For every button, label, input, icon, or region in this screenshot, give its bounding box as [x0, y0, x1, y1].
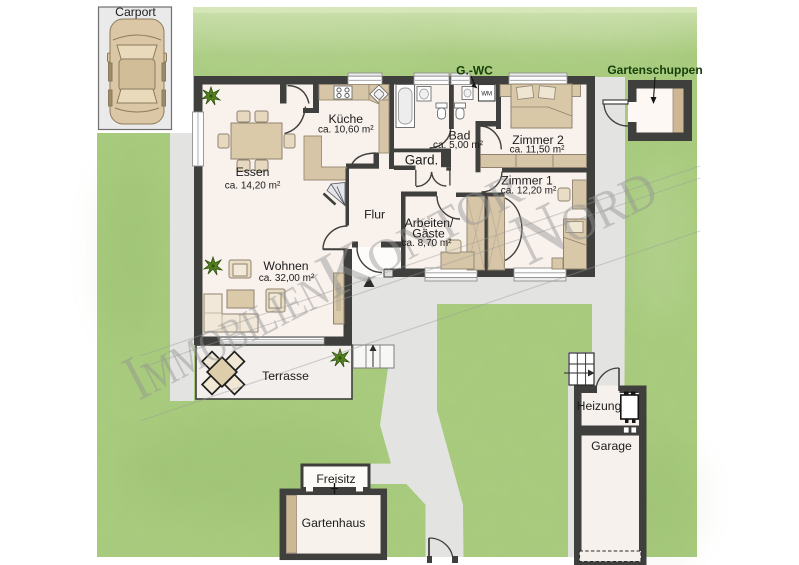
svg-text:Essen: Essen: [236, 165, 270, 179]
svg-text:Gartenschuppen: Gartenschuppen: [607, 63, 702, 77]
svg-text:ca. 5,00 m²: ca. 5,00 m²: [433, 140, 484, 151]
svg-text:Gartenhaus: Gartenhaus: [302, 516, 366, 530]
svg-text:ca. 8,70 m²: ca. 8,70 m²: [401, 238, 452, 249]
svg-text:ca. 14,20 m²: ca. 14,20 m²: [225, 181, 281, 192]
svg-text:Garage: Garage: [591, 439, 632, 453]
svg-text:Terrasse: Terrasse: [262, 369, 309, 383]
svg-text:Freisitz: Freisitz: [316, 472, 355, 486]
svg-text:Flur: Flur: [364, 207, 385, 221]
svg-text:ca. 10,60 m²: ca. 10,60 m²: [318, 125, 374, 136]
svg-text:Heizung: Heizung: [577, 399, 622, 413]
svg-text:Gard.: Gard.: [405, 153, 439, 168]
svg-text:G.-WC: G.-WC: [456, 64, 493, 78]
svg-text:Wohnen: Wohnen: [263, 259, 308, 273]
svg-text:ca. 11,50 m²: ca. 11,50 m²: [510, 145, 566, 156]
svg-text:ca. 32,00 m²: ca. 32,00 m²: [259, 273, 315, 284]
svg-text:WM: WM: [481, 92, 492, 98]
svg-text:Carport: Carport: [115, 5, 156, 19]
svg-text:ca. 12,20 m²: ca. 12,20 m²: [501, 186, 557, 197]
